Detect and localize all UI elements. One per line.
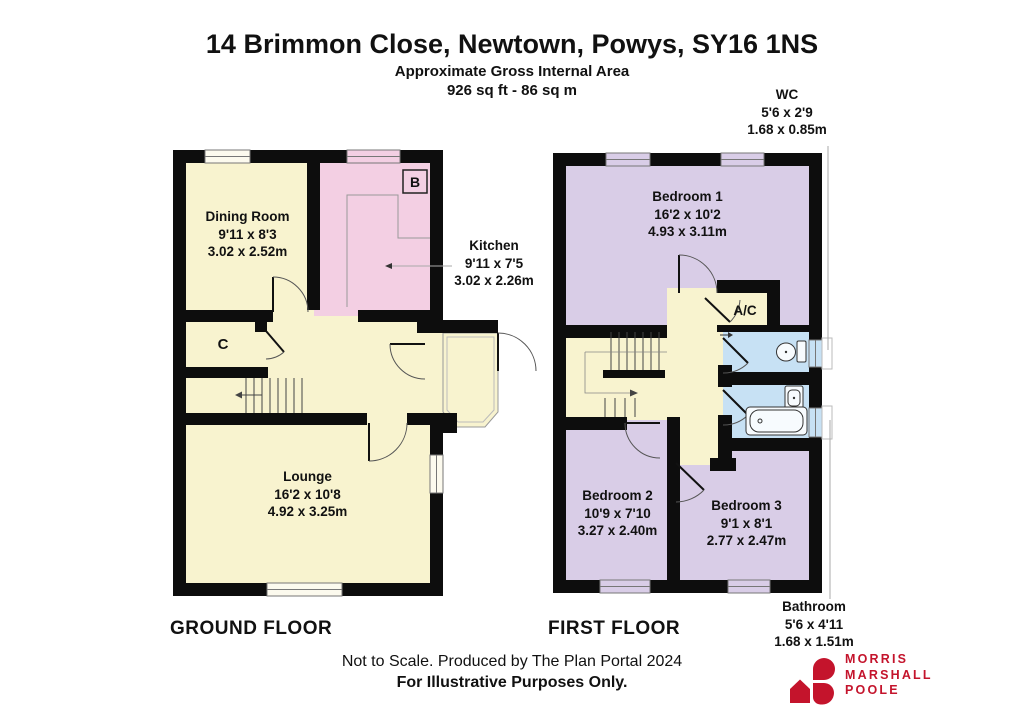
window — [347, 150, 400, 163]
room-label-dining-room: Dining Room 9'11 x 8'3 3.02 x 2.52m — [175, 208, 320, 261]
porch-bay-window — [443, 333, 498, 427]
window — [809, 338, 832, 369]
room-label-bathroom: Bathroom 5'6 x 4'11 1.68 x 1.51m — [754, 598, 874, 651]
window — [809, 406, 832, 439]
bathtub-icon — [746, 407, 807, 435]
subtitle-line1: Approximate Gross Internal Area — [0, 63, 1024, 82]
sink-icon — [785, 386, 803, 410]
toilet-icon — [777, 341, 807, 362]
room-label-kitchen: Kitchen 9'11 x 7'5 3.02 x 2.26m — [429, 237, 559, 290]
window — [267, 583, 342, 596]
agent-logo: MORRIS MARSHALL POOLE — [845, 652, 933, 699]
page-subtitle: Approximate Gross Internal Area 926 sq f… — [0, 63, 1024, 100]
room-label-wc: WC 5'6 x 2'9 1.68 x 0.85m — [727, 86, 847, 139]
window — [606, 153, 650, 166]
ground-floor-title: GROUND FLOOR — [170, 618, 332, 640]
logo-line1: MORRIS — [845, 652, 933, 668]
window — [600, 580, 650, 593]
door-arc — [498, 333, 536, 371]
marker-airing-cupboard: A/C — [723, 303, 767, 318]
room-label-bedroom-2: Bedroom 2 10'9 x 7'10 3.27 x 2.40m — [545, 487, 690, 540]
window — [205, 150, 250, 163]
page-title: 14 Brimmon Close, Newtown, Powys, SY16 1… — [0, 29, 1024, 59]
leader-lines — [828, 146, 830, 599]
floorplan-page: 14 Brimmon Close, Newtown, Powys, SY16 1… — [0, 0, 1024, 723]
window — [430, 455, 443, 493]
logo-line3: POOLE — [845, 683, 933, 699]
room-label-lounge: Lounge 16'2 x 10'8 4.92 x 3.25m — [235, 468, 380, 521]
room-label-bedroom-1: Bedroom 1 16'2 x 10'2 4.93 x 3.11m — [615, 188, 760, 241]
marker-boiler: B — [403, 174, 427, 190]
logo-line2: MARSHALL — [845, 668, 933, 684]
first-floor-title: FIRST FLOOR — [548, 618, 680, 640]
subtitle-line2: 926 sq ft - 86 sq m — [0, 82, 1024, 101]
room-label-bedroom-3: Bedroom 3 9'1 x 8'1 2.77 x 2.47m — [674, 497, 819, 550]
window — [728, 580, 770, 593]
marker-cupboard: C — [211, 336, 235, 353]
window — [721, 153, 764, 166]
